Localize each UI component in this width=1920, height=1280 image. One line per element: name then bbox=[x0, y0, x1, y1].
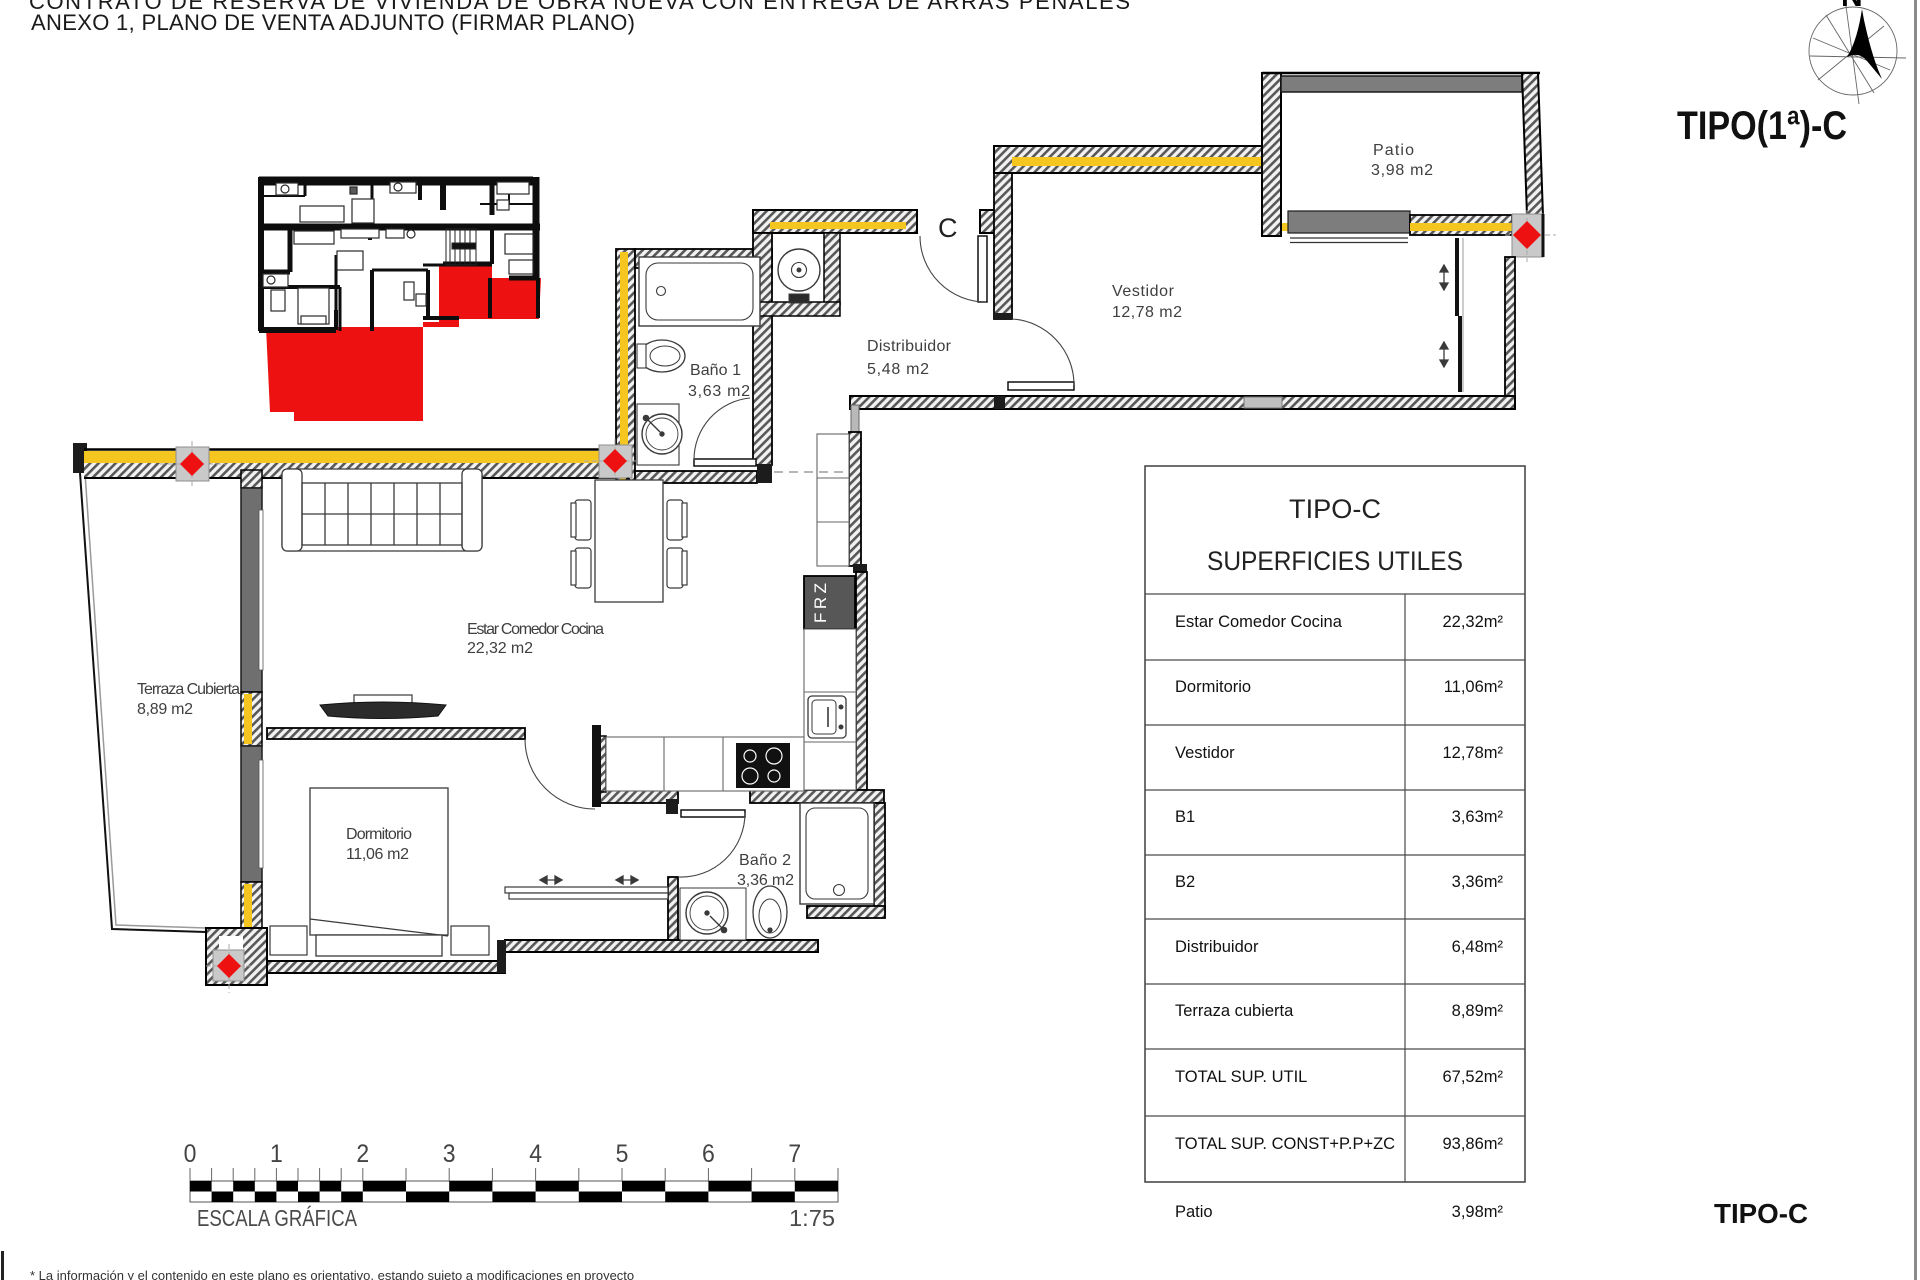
svg-text:1:75: 1:75 bbox=[789, 1205, 835, 1231]
svg-text:1: 1 bbox=[270, 1140, 283, 1168]
svg-text:TOTAL SUP. UTIL: TOTAL SUP. UTIL bbox=[1175, 1068, 1307, 1086]
svg-text:Baño 1: Baño 1 bbox=[690, 362, 741, 379]
svg-text:6: 6 bbox=[702, 1140, 715, 1168]
svg-text:SUPERFICIES UTILES: SUPERFICIES UTILES bbox=[1207, 546, 1463, 576]
svg-text:TIPO(1ª)-C: TIPO(1ª)-C bbox=[1677, 104, 1847, 148]
svg-text:3,63 m2: 3,63 m2 bbox=[688, 383, 750, 400]
svg-text:12,78 m2: 12,78 m2 bbox=[1112, 304, 1182, 321]
svg-text:ESCALA GRÁFICA: ESCALA GRÁFICA bbox=[197, 1205, 358, 1231]
svg-text:* La información y el contenid: * La información y el contenido en este … bbox=[30, 1268, 634, 1280]
svg-text:Distribuidor: Distribuidor bbox=[867, 338, 952, 355]
svg-text:B1: B1 bbox=[1175, 808, 1195, 826]
svg-text:ANEXO 1, PLANO DE VENTA ADJUNT: ANEXO 1, PLANO DE VENTA ADJUNTO (FIRMAR … bbox=[31, 10, 635, 35]
svg-text:Patio: Patio bbox=[1373, 142, 1414, 159]
svg-text:C: C bbox=[938, 213, 958, 243]
svg-text:12,78m²: 12,78m² bbox=[1442, 744, 1503, 762]
svg-text:5,48 m2: 5,48 m2 bbox=[867, 361, 929, 378]
svg-text:FRZ: FRZ bbox=[811, 583, 830, 623]
svg-text:Estar Comedor Cocina: Estar Comedor Cocina bbox=[1175, 613, 1343, 631]
svg-text:0: 0 bbox=[184, 1140, 197, 1168]
svg-text:Baño 2: Baño 2 bbox=[739, 852, 791, 869]
svg-text:TIPO-C: TIPO-C bbox=[1714, 1198, 1808, 1229]
svg-text:Terraza Cubierta: Terraza Cubierta bbox=[137, 681, 240, 698]
svg-text:Dormitorio: Dormitorio bbox=[346, 826, 412, 843]
svg-text:4: 4 bbox=[529, 1140, 542, 1168]
svg-text:TIPO-C: TIPO-C bbox=[1289, 494, 1381, 524]
svg-text:B2: B2 bbox=[1175, 873, 1195, 891]
svg-text:3,63m²: 3,63m² bbox=[1452, 808, 1504, 826]
svg-text:22,32 m2: 22,32 m2 bbox=[467, 640, 533, 657]
svg-text:11,06m²: 11,06m² bbox=[1444, 678, 1504, 696]
svg-text:3: 3 bbox=[443, 1140, 456, 1168]
svg-text:8,89m²: 8,89m² bbox=[1452, 1002, 1504, 1020]
svg-text:7: 7 bbox=[788, 1140, 801, 1168]
svg-text:5: 5 bbox=[616, 1140, 629, 1168]
svg-text:67,52m²: 67,52m² bbox=[1442, 1068, 1503, 1086]
svg-text:6,48m²: 6,48m² bbox=[1452, 938, 1504, 956]
svg-text:Estar Comedor Cocina: Estar Comedor Cocina bbox=[467, 621, 604, 638]
svg-text:Distribuidor: Distribuidor bbox=[1175, 938, 1259, 956]
svg-text:2: 2 bbox=[356, 1140, 369, 1168]
svg-text:3,36m²: 3,36m² bbox=[1452, 873, 1504, 891]
svg-text:N: N bbox=[1841, 0, 1863, 13]
svg-text:Vestidor: Vestidor bbox=[1112, 283, 1175, 300]
svg-text:Vestidor: Vestidor bbox=[1175, 744, 1235, 762]
svg-text:3,98m²: 3,98m² bbox=[1452, 1203, 1504, 1221]
svg-text:22,32m²: 22,32m² bbox=[1442, 613, 1503, 631]
svg-text:TOTAL SUP. CONST+P.P+ZC: TOTAL SUP. CONST+P.P+ZC bbox=[1175, 1135, 1395, 1153]
svg-text:3,98 m2: 3,98 m2 bbox=[1371, 162, 1433, 179]
svg-text:Dormitorio: Dormitorio bbox=[1175, 678, 1251, 696]
svg-text:93,86m²: 93,86m² bbox=[1442, 1135, 1503, 1153]
svg-text:11,06 m2: 11,06 m2 bbox=[346, 846, 409, 863]
svg-text:8,89 m2: 8,89 m2 bbox=[137, 701, 193, 718]
svg-text:Terraza cubierta: Terraza cubierta bbox=[1175, 1002, 1294, 1020]
svg-text:3,36 m2: 3,36 m2 bbox=[737, 872, 794, 889]
svg-text:Patio: Patio bbox=[1175, 1203, 1213, 1221]
